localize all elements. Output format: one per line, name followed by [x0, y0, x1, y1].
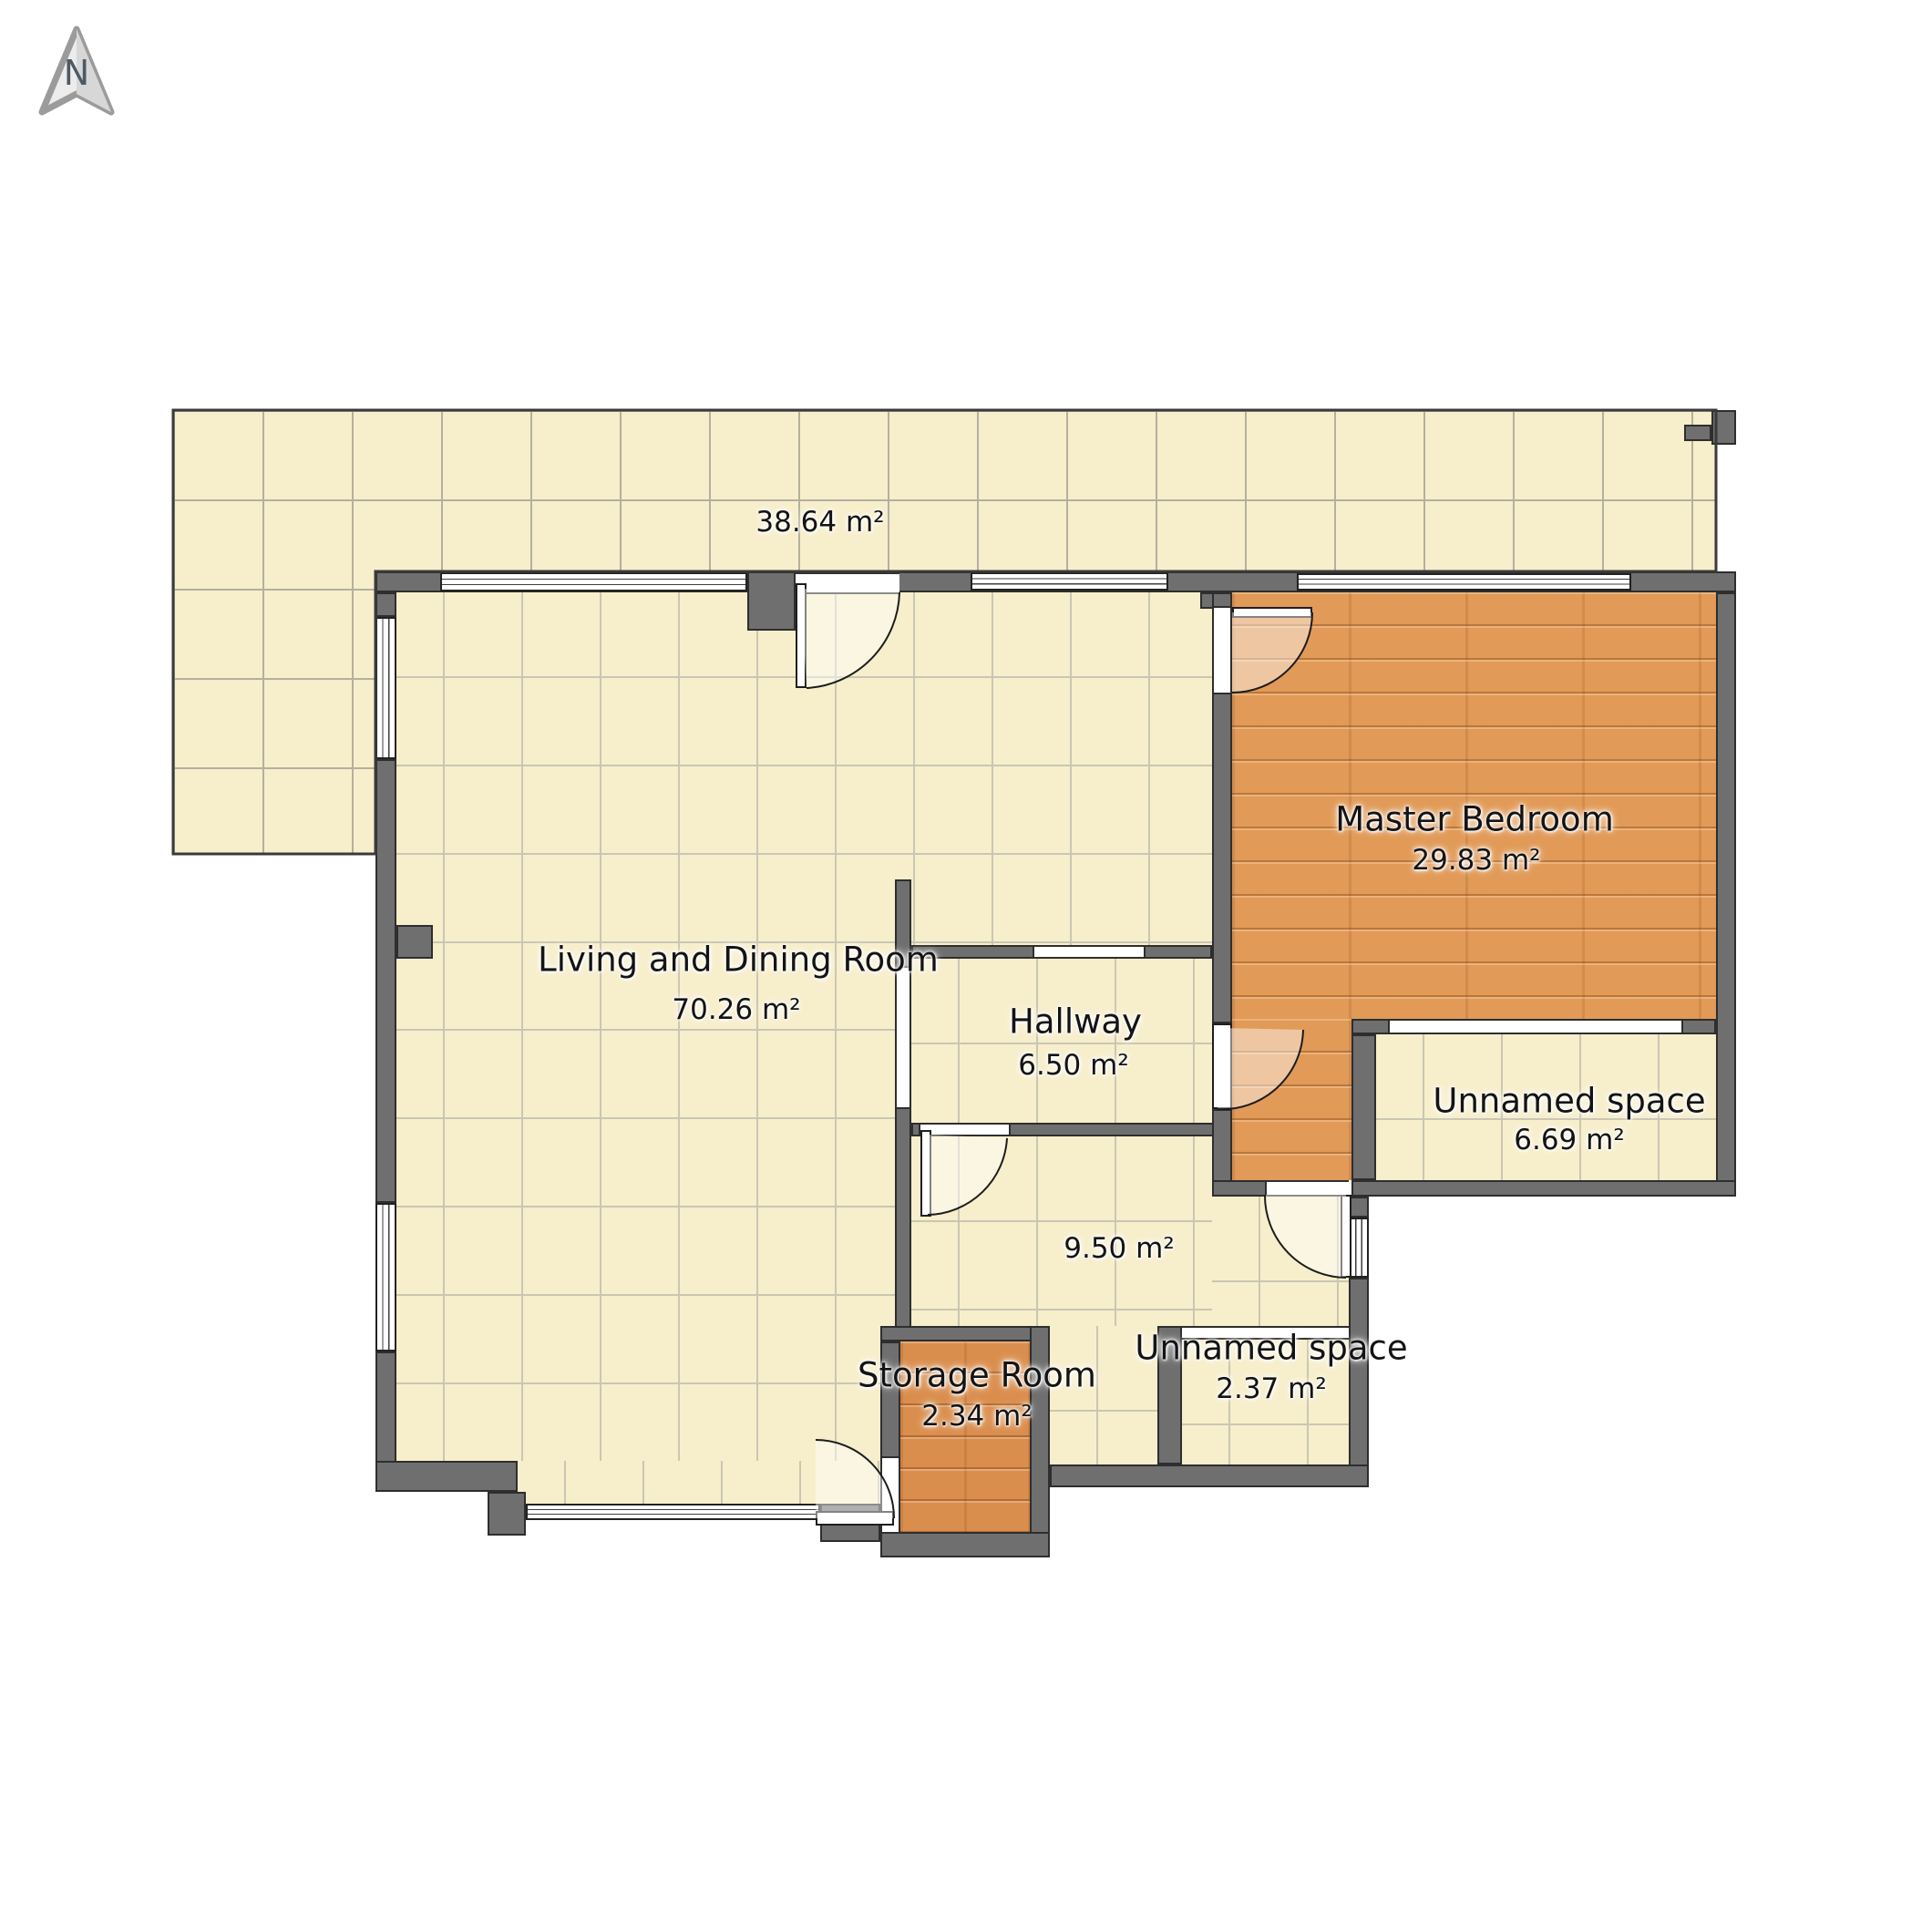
storage-door-leaf	[816, 1511, 894, 1526]
strip-door-leaf	[1212, 1023, 1232, 1109]
living-floor-south	[518, 1461, 880, 1504]
bottom-step-block	[488, 1492, 526, 1536]
hallway-label: Hallway	[1009, 1002, 1142, 1042]
entry-opening	[796, 572, 899, 594]
unnamed-right-bottom	[1351, 1180, 1736, 1197]
wall-left-a	[375, 592, 396, 617]
bath-floor-b	[1212, 1197, 1349, 1326]
hall-bot-a	[911, 1123, 920, 1136]
storage-top	[880, 1326, 1050, 1341]
hall-bottom-opening	[920, 1123, 1009, 1136]
unnamed-right-opening	[1390, 1019, 1681, 1034]
master-bedroom-label: Master Bedroom	[1335, 800, 1613, 839]
window-top-3	[1297, 573, 1631, 591]
vwall-a	[1212, 592, 1232, 608]
wall-left-b	[375, 759, 396, 1203]
east-ext-b	[1349, 1278, 1369, 1487]
bottom-left-wall	[375, 1461, 518, 1492]
north-arrow-icon: N	[35, 24, 118, 120]
window-top-1	[440, 572, 747, 591]
stub-left	[396, 925, 433, 959]
living-room-label: Living and Dining Room	[538, 940, 939, 980]
unnamed-right-label: Unnamed space	[1433, 1082, 1705, 1121]
window-left-2	[375, 1203, 396, 1351]
master-door-leaf	[1232, 607, 1312, 618]
bath-area-label: 9.50 m²	[1064, 1232, 1175, 1265]
north-label: N	[64, 53, 89, 93]
terrace-corner-b	[1684, 425, 1711, 441]
window-top-2	[971, 572, 1168, 591]
storage-room-area-label: 2.34 m²	[921, 1400, 1033, 1433]
unnamed-right-top-b	[1681, 1019, 1716, 1034]
se-bottom	[1050, 1464, 1369, 1487]
master-floor-strip	[1232, 1019, 1364, 1180]
terrace-floor-top	[173, 410, 1716, 571]
wall-left-c	[375, 1351, 396, 1463]
unnamed-right-top-a	[1351, 1019, 1390, 1034]
window-south	[526, 1504, 820, 1520]
hall-top-b	[1144, 945, 1212, 959]
storage-bottom	[880, 1532, 1050, 1557]
master-door-opening	[1212, 608, 1232, 693]
entry-pillar	[747, 571, 796, 631]
unnamed-bottom-label: Unnamed space	[1135, 1329, 1407, 1368]
wall-right	[1716, 592, 1736, 1197]
window-left-1	[375, 617, 396, 759]
master-bedroom-area-label: 29.83 m²	[1412, 844, 1540, 877]
entry-door-leaf	[796, 583, 807, 688]
ext-door-leaf	[1341, 1195, 1351, 1278]
unnamed-right-left	[1351, 1034, 1376, 1180]
floor-plan-canvas: N 38.64 m² Living and Dining Room 70.26 …	[0, 0, 1932, 1932]
terrace-floor-left	[173, 410, 375, 854]
unnamed-right-area-label: 6.69 m²	[1514, 1124, 1625, 1156]
bath-floor-a	[911, 1136, 1221, 1326]
vwall-b	[1212, 693, 1232, 1023]
unnamed-bottom-area-label: 2.37 m²	[1216, 1372, 1327, 1405]
hall-top-opening	[1034, 945, 1144, 959]
living-room-area-label: 70.26 m²	[672, 993, 800, 1026]
strip-corner	[1212, 1180, 1267, 1197]
storage-room-label: Storage Room	[858, 1356, 1096, 1395]
hall-bot-b	[1009, 1123, 1221, 1136]
hall-left-opening	[895, 968, 911, 1107]
living-floor-main	[396, 945, 911, 1461]
terrace-corner-a	[1711, 410, 1736, 445]
strip-bottom-opening	[1267, 1180, 1349, 1197]
east-ext-a	[1349, 1197, 1369, 1218]
hall-left	[895, 1107, 911, 1331]
hallway-area-label: 6.50 m²	[1018, 1049, 1129, 1082]
terrace-area-label: 38.64 m²	[755, 506, 884, 539]
bath-door-leaf	[920, 1130, 931, 1217]
window-east	[1349, 1218, 1369, 1278]
